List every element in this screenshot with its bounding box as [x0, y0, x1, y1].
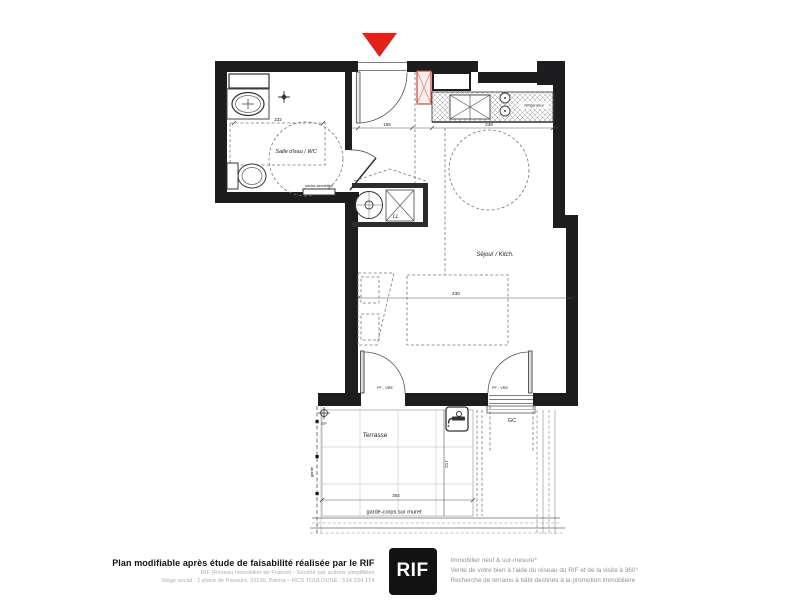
footer-left-block: Plan modifiable après étude de faisabili…: [105, 557, 375, 586]
floor-plan: réfrigérateur 155 249 232 Séjour / Kitch…: [0, 0, 800, 545]
dim-entry-width: 155: [383, 122, 391, 127]
footer-right-block: Immobilier neuf & sur-mesure* Vente de v…: [451, 556, 696, 586]
washing-machine-icon: [356, 192, 383, 219]
terrace: EP Terrasse garde 217 304 garde-corps su…: [309, 406, 565, 534]
kitchen-counter: réfrigérateur: [432, 92, 553, 122]
guardrail-window: [487, 396, 535, 414]
entrance-marker-icon: [362, 33, 397, 57]
footer-tagline-3: Recherche de terrains à bâtir destinés à…: [451, 576, 696, 586]
living-room-label: Séjour / Kitch.: [476, 252, 513, 258]
footer-company-line1: RIF (Réseau Immobilier de France) - Soci…: [105, 569, 375, 577]
fridge-label: réfrigérateur: [524, 104, 544, 108]
technical-duct: [417, 71, 431, 104]
towel-dryer-label: sèche-serviettes: [305, 184, 333, 188]
railing-bottom-label: garde-corps sur muret: [366, 510, 421, 516]
folding-bed: [358, 273, 394, 345]
door-left-label: PF - VRE: [377, 386, 394, 390]
toilet-icon: [227, 163, 266, 189]
bathroom-label: Salle d'eau / WC: [275, 149, 317, 155]
railing-side-label: garde: [309, 466, 314, 477]
terrace-label: Terrasse: [363, 432, 388, 439]
furniture-zone: [407, 275, 508, 345]
kitchen-sink-icon: [450, 95, 490, 119]
rif-logo: RIF: [389, 548, 437, 595]
rain-drain-icon: [318, 407, 330, 419]
laundry-closet: LL: [352, 169, 428, 227]
dim-living-width: 430: [452, 291, 460, 297]
footer-company-line2: Siège social : 1 place de Pavaurs, 31130…: [105, 577, 375, 585]
dim-terrace-width: 304: [392, 493, 400, 498]
faucet-icon: [446, 407, 468, 431]
towel-dryer-icon: [303, 189, 335, 195]
dim-terrace-depth: 217: [444, 460, 449, 468]
entry-cupboard: [433, 73, 470, 90]
guardrail-label: GC: [508, 418, 516, 424]
dim-bathroom-width: 232: [274, 117, 282, 122]
bathroom-shelf: [229, 74, 269, 88]
rif-logo-text: RIF: [396, 560, 428, 582]
floor-plan-page: réfrigérateur 155 249 232 Séjour / Kitch…: [0, 0, 800, 600]
door-right-label: PF - VRE: [492, 386, 509, 390]
bathroom: [227, 74, 376, 196]
vanity-sink-icon: [227, 89, 269, 119]
shower-zone: [230, 123, 325, 165]
footer: Plan modifiable après étude de faisabili…: [0, 542, 800, 600]
turning-circle-living: [449, 130, 529, 210]
washing-machine-label: LL: [393, 214, 399, 220]
dimension-line-top: 155 249: [352, 122, 558, 130]
footer-tagline-1: Immobilier neuf & sur-mesure*: [451, 556, 696, 566]
footer-title: Plan modifiable après étude de faisabili…: [105, 557, 375, 569]
dim-kitchen-width: 249: [485, 122, 493, 127]
ceiling-light-icon: [278, 91, 290, 103]
entrance-door: [357, 63, 408, 124]
footer-tagline-2: Vente de votre bien à l'aide du réseau d…: [451, 566, 696, 576]
rain-drain-label: EP: [321, 421, 327, 426]
